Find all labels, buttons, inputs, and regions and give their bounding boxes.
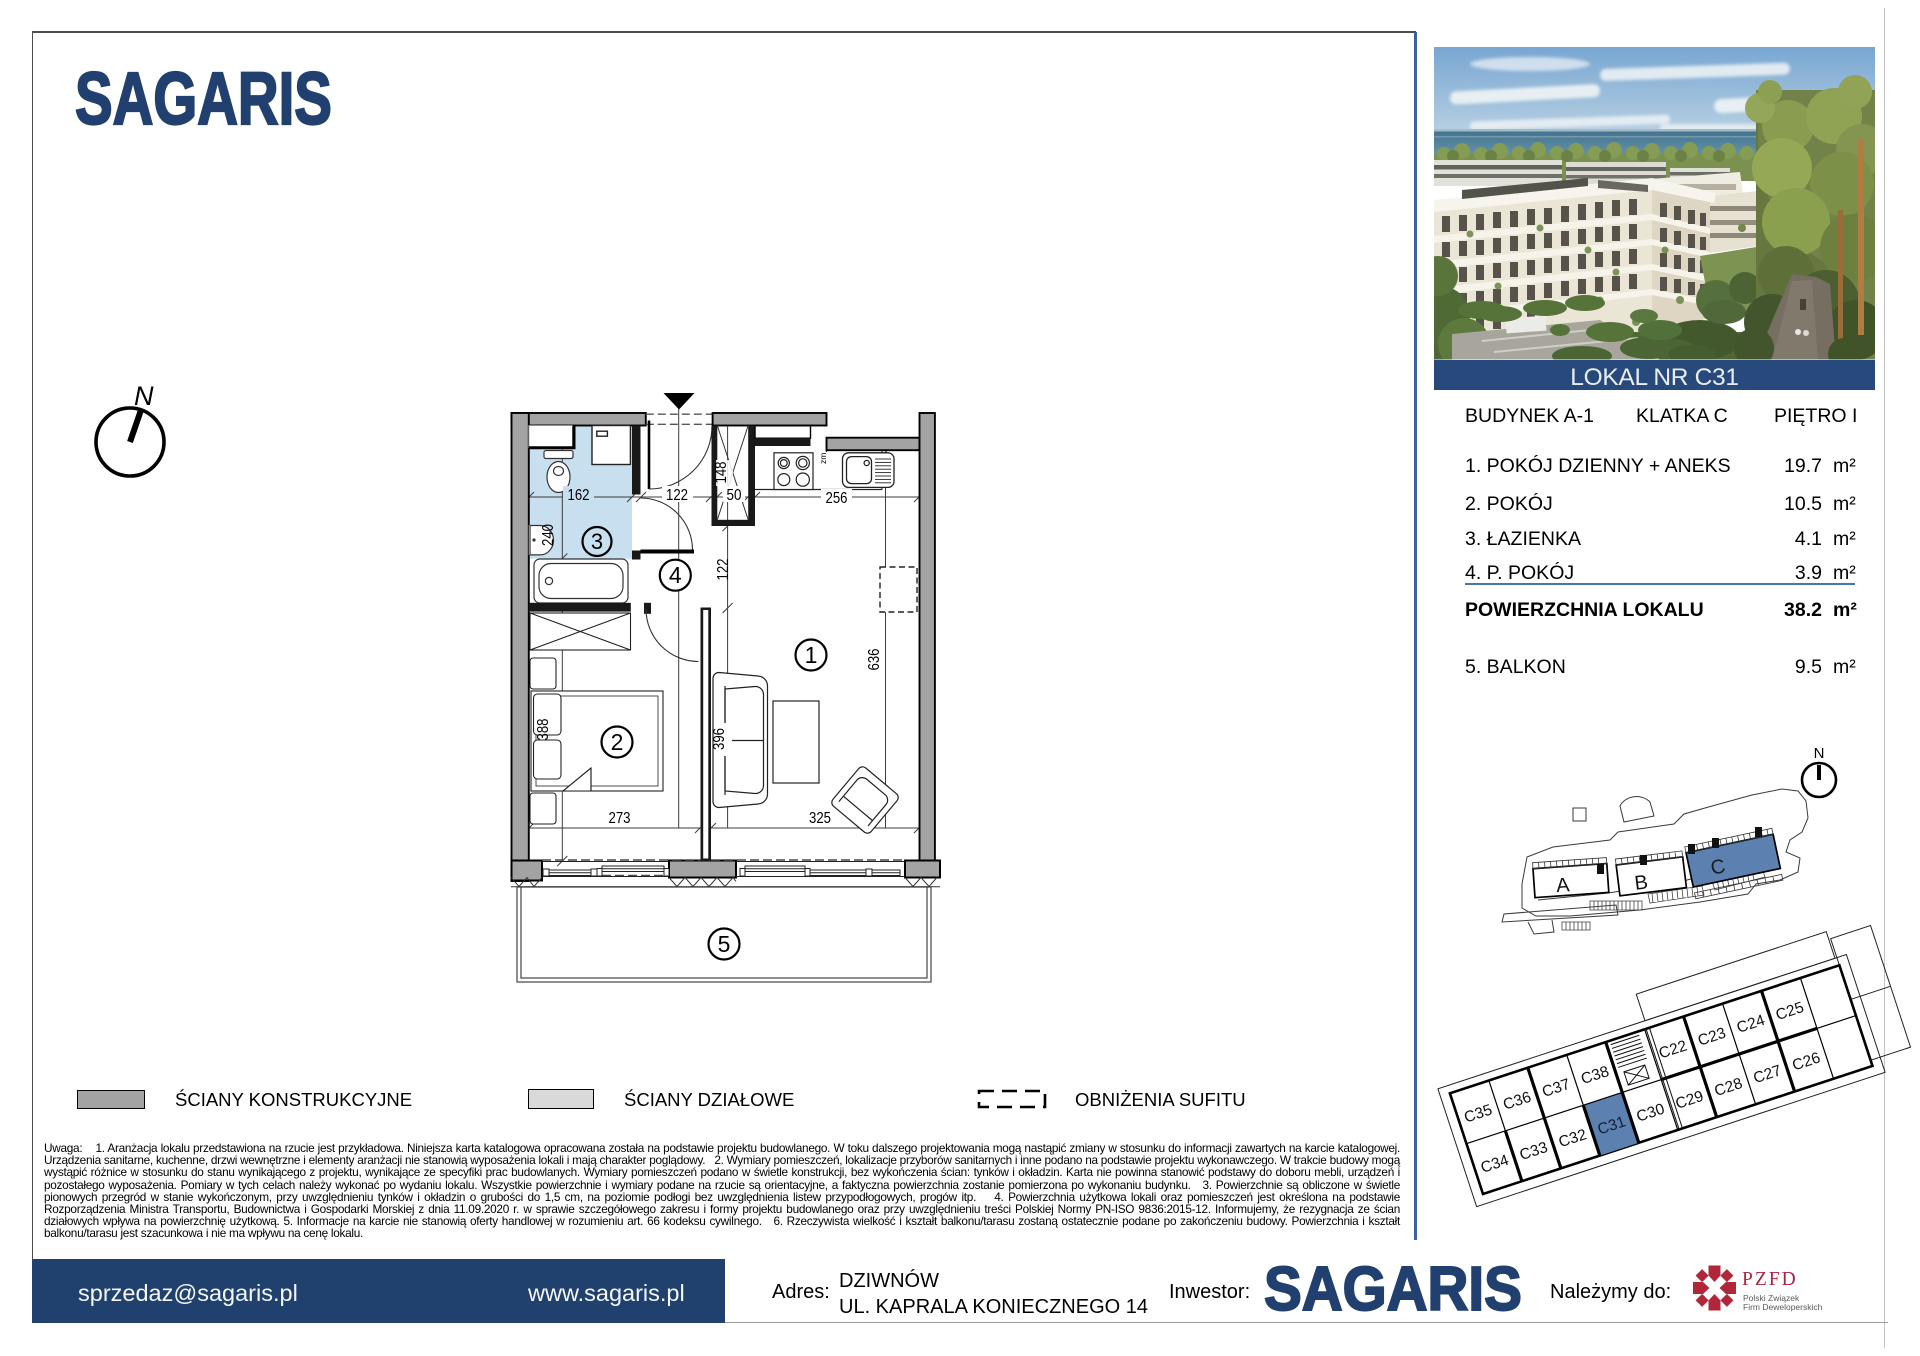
svg-text:4: 4 [669, 562, 682, 588]
svg-text:240: 240 [540, 524, 557, 546]
svg-text:256: 256 [826, 490, 848, 507]
svg-text:388: 388 [535, 719, 552, 741]
svg-text:C35: C35 [1462, 1101, 1494, 1126]
svg-text:B: B [1633, 871, 1649, 894]
svg-text:C30: C30 [1634, 1100, 1667, 1125]
svg-text:C29: C29 [1673, 1088, 1705, 1113]
svg-text:C24: C24 [1735, 1012, 1768, 1037]
svg-text:636: 636 [866, 649, 883, 671]
svg-text:N: N [134, 381, 154, 411]
svg-text:396: 396 [711, 728, 728, 750]
svg-text:C23: C23 [1696, 1025, 1728, 1050]
svg-text:C27: C27 [1751, 1062, 1783, 1087]
svg-text:2: 2 [611, 729, 624, 755]
svg-text:C34: C34 [1479, 1152, 1512, 1177]
svg-text:C36: C36 [1501, 1089, 1533, 1114]
svg-text:5: 5 [718, 931, 731, 957]
svg-text:N: N [1814, 745, 1825, 762]
svg-text:273: 273 [609, 810, 631, 827]
svg-text:A: A [1555, 874, 1571, 897]
svg-text:C22: C22 [1657, 1037, 1689, 1062]
svg-text:C38: C38 [1579, 1063, 1611, 1088]
svg-text:zm: zm [818, 453, 828, 464]
svg-text:C32: C32 [1557, 1126, 1589, 1151]
svg-text:50: 50 [727, 487, 742, 504]
svg-text:C25: C25 [1774, 999, 1806, 1024]
svg-text:C33: C33 [1518, 1139, 1550, 1164]
svg-text:122: 122 [715, 559, 732, 581]
svg-text:162: 162 [568, 487, 590, 504]
svg-text:325: 325 [809, 810, 831, 827]
svg-text:148: 148 [713, 462, 730, 484]
svg-text:122: 122 [666, 487, 688, 504]
svg-text:1: 1 [805, 642, 818, 668]
svg-text:C26: C26 [1790, 1049, 1822, 1074]
svg-text:C37: C37 [1540, 1076, 1572, 1101]
svg-text:3: 3 [591, 529, 603, 554]
svg-text:C28: C28 [1712, 1075, 1744, 1100]
